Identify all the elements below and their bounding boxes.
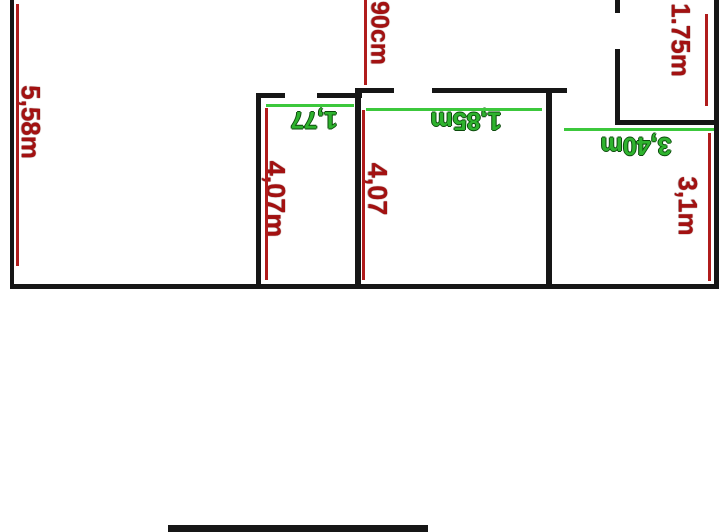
- mid-wall-segment-a: [256, 93, 285, 98]
- dim-line-5-58m: [16, 4, 19, 266]
- top-right-horiz-wall: [615, 120, 716, 125]
- dim-line-90cm: [364, 0, 367, 85]
- floor-plan-scan: { "page": { "background": "#ffffff" }, "…: [0, 0, 720, 532]
- measurement-label-90cm: 90cm: [367, 1, 392, 65]
- dim-line-4-07: [362, 110, 365, 280]
- dim-line-1-85m: [366, 108, 542, 111]
- top-right-wall-lower: [615, 49, 620, 124]
- dim-line-3-40m: [564, 128, 714, 131]
- left-wall: [10, 0, 14, 289]
- measurement-label-3-1m: 3,1m: [675, 176, 701, 235]
- bottom-black-bar: [168, 525, 428, 532]
- top-right-wall-upper: [615, 0, 620, 13]
- room2-right-wall: [355, 89, 361, 284]
- mid-wall-segment-b: [317, 93, 362, 98]
- dim-line-1-75m: [705, 14, 708, 106]
- measurement-label-3-40m: 3,40m: [601, 133, 672, 158]
- room1-right-wall: [256, 93, 261, 284]
- room3-right-wall: [546, 92, 552, 284]
- dim-line-1-77: [266, 104, 354, 107]
- right-wall: [714, 0, 719, 289]
- dim-line-3-1m: [708, 133, 711, 281]
- mid-wall-segment-c: [355, 88, 394, 93]
- measurement-label-1-75m: 1.75m: [668, 3, 694, 77]
- floor-plan: 5,58m 90cm 1.75m 4,07m 4,07 3,1m 1,77 1,…: [0, 0, 720, 532]
- dim-line-4-07m: [265, 108, 268, 280]
- measurement-label-1-85m: 1,85m: [431, 108, 502, 133]
- measurement-label-5-58m: 5,58m: [18, 85, 44, 159]
- measurement-label-1-77: 1,77: [291, 107, 338, 131]
- mid-wall-segment-d: [432, 88, 567, 93]
- measurement-label-4-07: 4,07: [364, 163, 391, 216]
- bottom-wall: [10, 284, 719, 289]
